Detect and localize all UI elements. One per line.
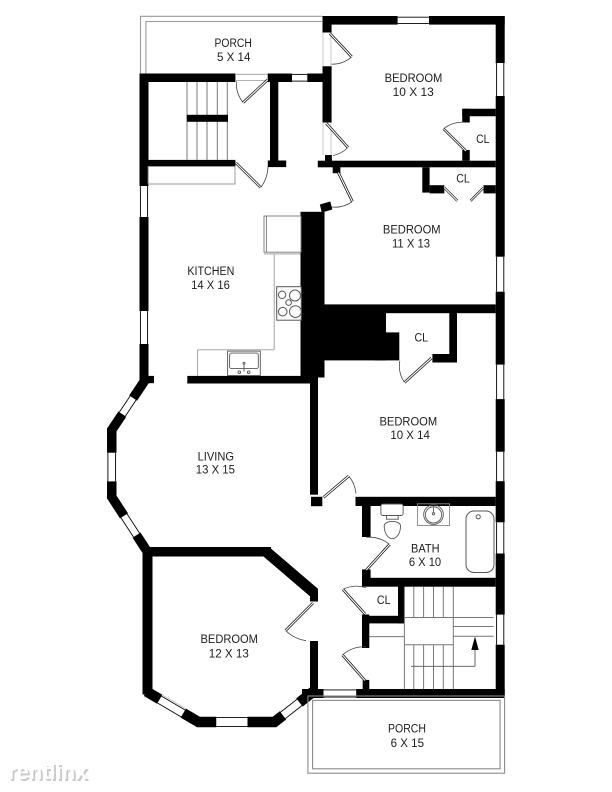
svg-text:BEDROOM: BEDROOM (385, 71, 443, 85)
svg-text:14 X 16: 14 X 16 (191, 278, 230, 292)
svg-text:5 X 14: 5 X 14 (217, 50, 251, 64)
svg-text:CL: CL (456, 172, 470, 186)
svg-text:KITCHEN: KITCHEN (187, 264, 234, 278)
svg-text:LIVING: LIVING (198, 450, 234, 464)
svg-text:rentlinx: rentlinx (8, 759, 88, 784)
svg-text:PORCH: PORCH (215, 36, 252, 50)
svg-text:10 X 14: 10 X 14 (390, 428, 430, 442)
svg-text:10 X 13: 10 X 13 (393, 85, 434, 99)
svg-text:BEDROOM: BEDROOM (379, 414, 437, 428)
svg-text:BEDROOM: BEDROOM (201, 632, 258, 646)
svg-text:BATH: BATH (411, 541, 440, 555)
svg-text:CL: CL (415, 331, 429, 345)
svg-text:CL: CL (377, 593, 391, 607)
svg-text:CL: CL (476, 132, 489, 146)
svg-text:6 X 10: 6 X 10 (409, 555, 441, 569)
svg-text:11 X 13: 11 X 13 (392, 237, 430, 251)
svg-text:BEDROOM: BEDROOM (383, 223, 441, 237)
svg-text:6 X 15: 6 X 15 (391, 736, 424, 750)
svg-text:13 X 15: 13 X 15 (196, 463, 235, 477)
svg-text:PORCH: PORCH (388, 722, 426, 736)
svg-text:12 X 13: 12 X 13 (209, 647, 249, 661)
